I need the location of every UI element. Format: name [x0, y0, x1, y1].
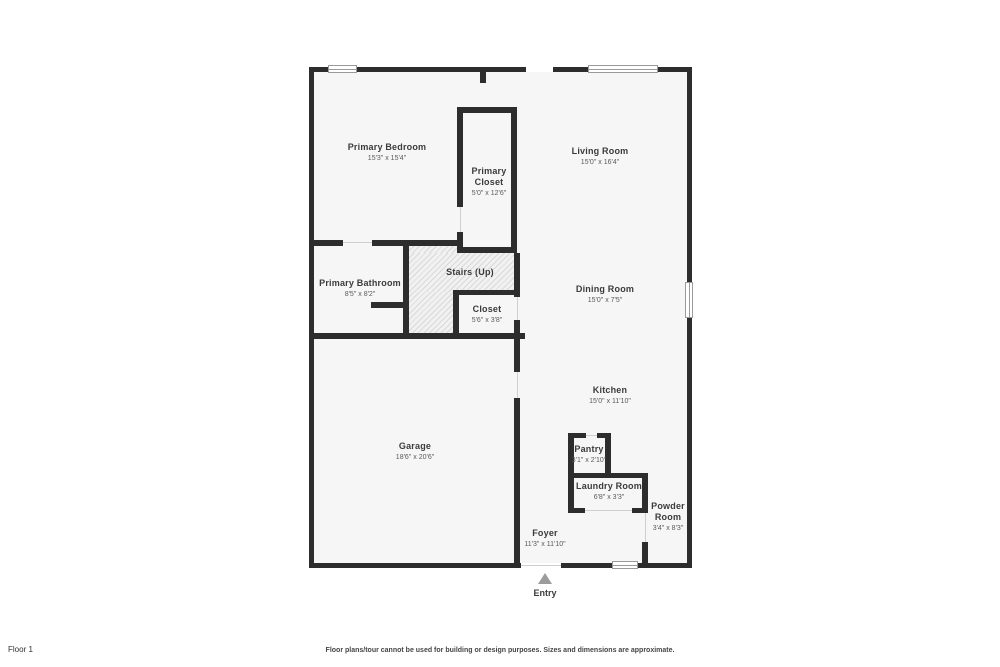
- wall-bottom: [638, 563, 692, 568]
- window-living-small: [526, 67, 553, 72]
- wall-laundry-bottom: [568, 508, 585, 513]
- room-name: Laundry Room: [576, 481, 642, 492]
- wall-powder-left: [642, 542, 648, 563]
- room-label-primary-bedroom: Primary Bedroom 15'3" x 15'4": [348, 142, 427, 163]
- wall-primary-closet-top: [457, 107, 517, 113]
- disclaimer-text: Floor plans/tour cannot be used for buil…: [326, 647, 675, 654]
- room-dims: 18'6" x 20'6": [396, 453, 434, 462]
- floor-plan-page: Primary Bedroom 15'3" x 15'4" Primary Cl…: [0, 0, 1000, 667]
- window-bedroom: [328, 65, 357, 73]
- stairs-hatch: [409, 292, 453, 333]
- window-dining: [685, 282, 693, 318]
- room-dims: 15'0" x 7'5": [576, 296, 634, 305]
- room-label-primary-closet: Primary Closet 5'0" x 12'6": [465, 166, 513, 198]
- room-label-foyer: Foyer 11'3" x 11'10": [524, 528, 565, 549]
- door-bathroom: [343, 242, 372, 243]
- room-name: Primary Closet: [465, 166, 513, 188]
- wall-garage-top: [309, 333, 525, 339]
- wall-closet-left: [453, 295, 459, 333]
- wall-bedroom-bottom: [309, 240, 343, 246]
- opening-laundry: [585, 510, 632, 511]
- room-label-garage: Garage 18'6" x 20'6": [396, 441, 434, 462]
- room-label-primary-bathroom: Primary Bathroom 8'5" x 8'2": [319, 278, 401, 299]
- window-hall: [612, 561, 638, 569]
- room-name: Garage: [396, 441, 434, 452]
- room-name: Pantry: [572, 444, 607, 455]
- room-dims: 6'8" x 3'3": [576, 493, 642, 502]
- room-name: Living Room: [572, 146, 629, 157]
- room-label-closet: Closet 5'6" x 3'8": [472, 304, 503, 325]
- entry-arrow-icon: [538, 573, 552, 584]
- room-dims: 5'0" x 12'6": [465, 189, 513, 198]
- room-name: Closet: [472, 304, 503, 315]
- stairs-hatch: [409, 246, 462, 253]
- door-primary-closet: [460, 207, 461, 232]
- wall-bedroom-bottom: [372, 240, 462, 246]
- room-name: Kitchen: [589, 385, 631, 396]
- wall-bathroom-right: [403, 246, 409, 333]
- room-label-living-room: Living Room 15'0" x 16'4": [572, 146, 629, 167]
- room-dims: 15'3" x 15'4": [348, 154, 427, 163]
- window-living: [588, 65, 658, 73]
- room-dims: 5'6" x 3'8": [472, 316, 503, 325]
- room-name: Primary Bedroom: [348, 142, 427, 153]
- door-closet: [517, 297, 518, 320]
- wall-garage-right: [514, 398, 520, 563]
- wall-top: [553, 67, 588, 72]
- door-garage: [517, 372, 518, 398]
- wall-top: [357, 67, 526, 72]
- room-name: Dining Room: [576, 284, 634, 295]
- wall-garage-right: [514, 339, 520, 372]
- room-dims: 15'0" x 16'4": [572, 158, 629, 167]
- wall-closet-top: [453, 290, 520, 295]
- wall-laundry-left: [568, 478, 574, 508]
- wall-laundry-top: [568, 473, 648, 478]
- room-dims: 11'3" x 11'10": [524, 540, 565, 549]
- room-dims: 15'0" x 11'10": [589, 397, 631, 406]
- room-name: Stairs (Up): [446, 267, 494, 278]
- room-name: Powder Room: [643, 501, 693, 523]
- wall-bottom: [309, 563, 521, 568]
- wall-primary-closet-left: [457, 113, 463, 207]
- room-dims: 3'1" x 2'10": [572, 456, 607, 465]
- room-label-stairs: Stairs (Up): [446, 267, 494, 278]
- room-label-dining-room: Dining Room 15'0" x 7'5": [576, 284, 634, 305]
- room-label-laundry-room: Laundry Room 6'8" x 3'3": [576, 481, 642, 502]
- room-dims: 8'5" x 8'2": [319, 290, 401, 299]
- room-label-powder-room: Powder Room 3'4" x 8'3": [643, 501, 693, 533]
- wall-left: [309, 67, 314, 568]
- room-name: Primary Bathroom: [319, 278, 401, 289]
- door-pantry: [586, 435, 597, 436]
- wall-living-divider: [480, 72, 486, 83]
- wall-bottom: [561, 563, 612, 568]
- wall-pantry-top: [568, 433, 586, 438]
- entry-label: Entry: [533, 588, 556, 598]
- wall-primary-closet-bottom: [457, 247, 517, 253]
- room-name: Foyer: [524, 528, 565, 539]
- wall-stairs-right: [514, 320, 520, 333]
- wall-right: [687, 67, 692, 282]
- floor-number-label: Floor 1: [8, 645, 33, 654]
- wall-bathroom-stub: [371, 302, 403, 308]
- room-dims: 3'4" x 8'3": [643, 524, 693, 533]
- room-label-pantry: Pantry 3'1" x 2'10": [572, 444, 607, 465]
- room-label-kitchen: Kitchen 15'0" x 11'10": [589, 385, 631, 406]
- entry-threshold: [521, 565, 561, 566]
